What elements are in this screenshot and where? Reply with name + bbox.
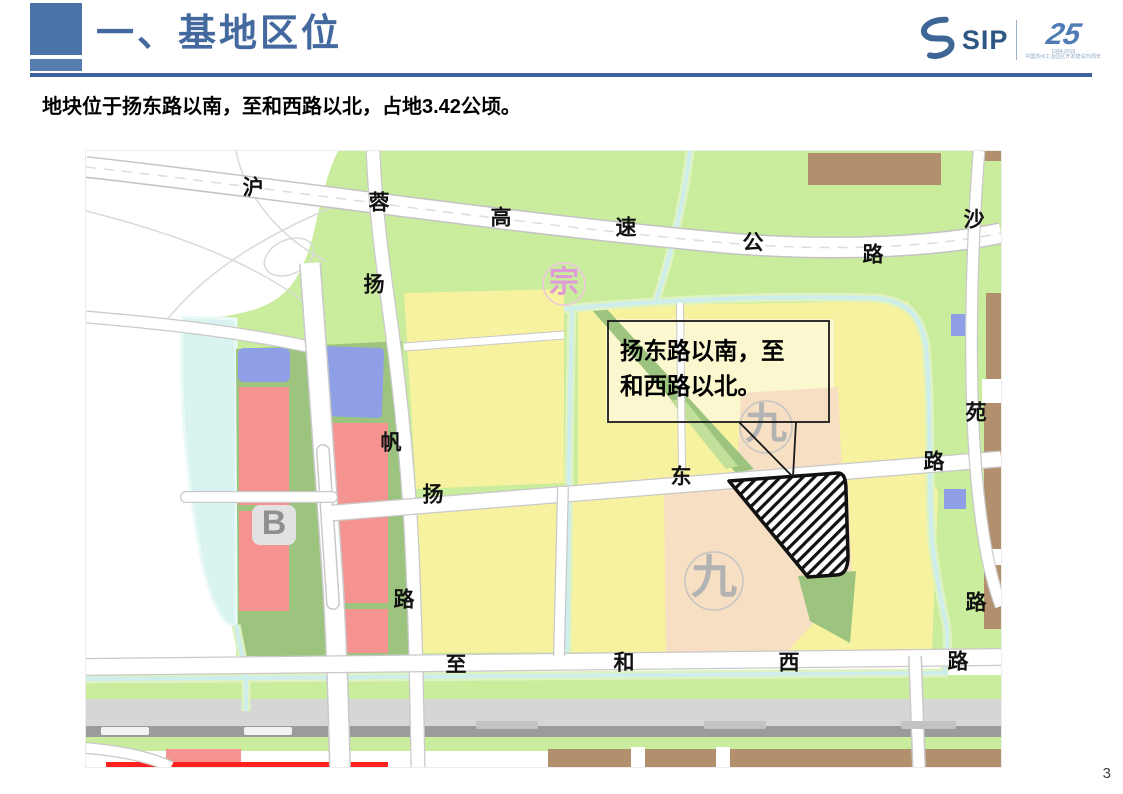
map-watermark-text: 九 <box>691 551 737 603</box>
parcel-brown <box>808 153 941 185</box>
site-location-map: 宗九九B 沪蓉高速公路沙扬帆路扬东路至和西路苑路 扬东路以南，至 和西路以北。 <box>85 150 1002 768</box>
map-road-label: 至 <box>446 654 467 677</box>
map-road-label: 帆 <box>381 431 402 455</box>
sip-logo: SIP 25 1994-2019 中国苏州工业园区开发建设25周年 <box>918 14 1101 66</box>
sip-swoosh-icon <box>918 16 958 65</box>
map-road-label: 路 <box>948 650 970 674</box>
map-road-label: 蓉 <box>369 191 390 215</box>
map-road-label: 路 <box>394 588 416 612</box>
parcel-salmon <box>239 387 289 505</box>
anniversary-number: 25 <box>1043 20 1083 50</box>
callout-line2: 和西路以北。 <box>620 372 761 399</box>
green-strip <box>86 737 1001 751</box>
anniversary-caption: 中国苏州工业园区开发建设25周年 <box>1025 55 1101 60</box>
page-title: 一、基地区位 <box>96 2 342 57</box>
road-gap <box>631 747 645 767</box>
map-road-label: 速 <box>616 217 637 240</box>
map-watermark-text: B <box>262 504 287 542</box>
map-road-label: 路 <box>863 243 885 267</box>
map-road-label: 扬 <box>364 274 385 297</box>
parcel-yellow <box>404 289 564 489</box>
map-road-label: 和 <box>614 652 635 675</box>
parcel-blue <box>238 348 290 382</box>
header-deco-square <box>30 3 82 55</box>
transit-corridor <box>86 699 1001 726</box>
transit-track <box>86 726 1001 737</box>
sip-logo-text: SIP <box>962 25 1009 56</box>
page-number: 3 <box>1103 765 1111 782</box>
road-gap <box>982 379 1001 403</box>
anniversary-mark: 25 1994-2019 中国苏州工业园区开发建设25周年 <box>1025 20 1101 60</box>
map-road-label: 苑 <box>966 402 987 425</box>
map-road-label: 高 <box>491 206 512 230</box>
map-road-label: 西 <box>779 652 800 675</box>
slide: 一、基地区位 SIP 25 1994-2019 中国苏州工业园区开发建设25周年… <box>0 0 1123 794</box>
map-road-label: 扬 <box>423 484 444 507</box>
callout-line1: 扬东路以南，至 <box>620 337 785 364</box>
header-deco-bar <box>30 59 82 71</box>
logo-divider <box>1016 20 1017 60</box>
map-road-label: 沙 <box>964 209 985 232</box>
map-watermark-text: 九 <box>745 400 787 447</box>
map-road-label: 东 <box>671 465 692 489</box>
road-gap <box>716 747 730 767</box>
map-road-label: 公 <box>743 232 764 255</box>
slide-subtitle: 地块位于扬东路以南，至和西路以北，占地3.42公顷。 <box>42 90 521 119</box>
header-rule <box>30 73 1092 77</box>
parcel-blue <box>944 489 966 509</box>
parcel-brown <box>548 749 1001 767</box>
map-road-label: 路 <box>924 450 946 474</box>
map-road-label: 路 <box>966 591 988 615</box>
map-road-label: 沪 <box>243 176 264 200</box>
map-watermark-text: 宗 <box>549 265 579 299</box>
parcel-brown <box>986 293 1001 385</box>
